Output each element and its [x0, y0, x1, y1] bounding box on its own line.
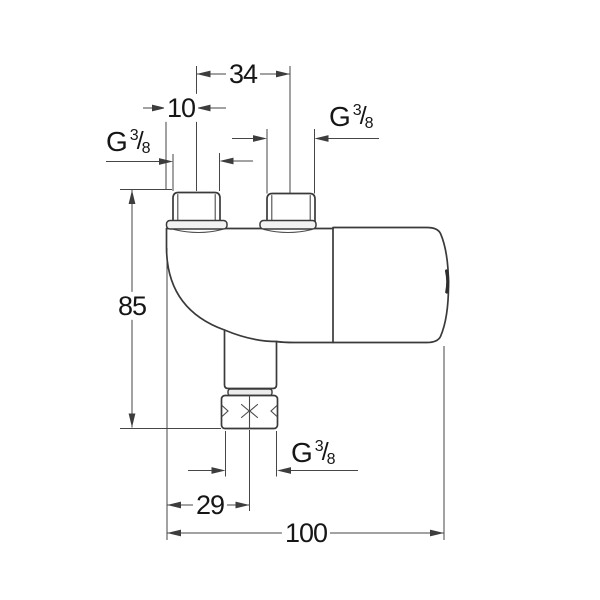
inlet-flange-right	[260, 221, 316, 230]
dim-label-inlet-offset: 10	[164, 94, 198, 122]
dim-label-overall-width: 100	[282, 519, 330, 547]
drawing-svg	[0, 0, 600, 600]
inlet-flange-left	[167, 221, 228, 230]
thread-denominator: 8	[142, 141, 151, 157]
dim-label-inlet-spacing: 34	[226, 60, 260, 88]
body-bottom-edge	[277, 342, 334, 343]
thread-prefix: G	[329, 103, 351, 131]
thread-label-outlet: G3/8	[291, 439, 336, 467]
outlet-washer	[228, 389, 272, 396]
thread-prefix: G	[291, 439, 313, 467]
knob-grip-mark	[447, 271, 448, 292]
dim-label-height: 85	[115, 292, 149, 320]
boss-curve-right	[264, 230, 312, 233]
valve-body-outline	[167, 229, 277, 389]
thread-label-inlet-right: G3/8	[329, 103, 374, 131]
thread-prefix: G	[106, 128, 128, 156]
boss-curve-left	[174, 230, 222, 233]
inlet-cap-right	[267, 194, 315, 222]
technical-drawing-canvas: 34 10 85 29 100 G3/8 G3/8 G3/8	[0, 0, 600, 600]
valve-assembly	[167, 193, 449, 429]
body-pipe-junction-curve	[225, 330, 277, 342]
thread-denominator: 8	[365, 116, 374, 132]
thread-label-inlet-left: G3/8	[106, 128, 151, 156]
thermostat-knob	[333, 228, 449, 343]
inlet-cap-left	[173, 193, 220, 222]
thread-denominator: 8	[327, 452, 336, 468]
dim-label-outlet-offset: 29	[193, 491, 227, 519]
